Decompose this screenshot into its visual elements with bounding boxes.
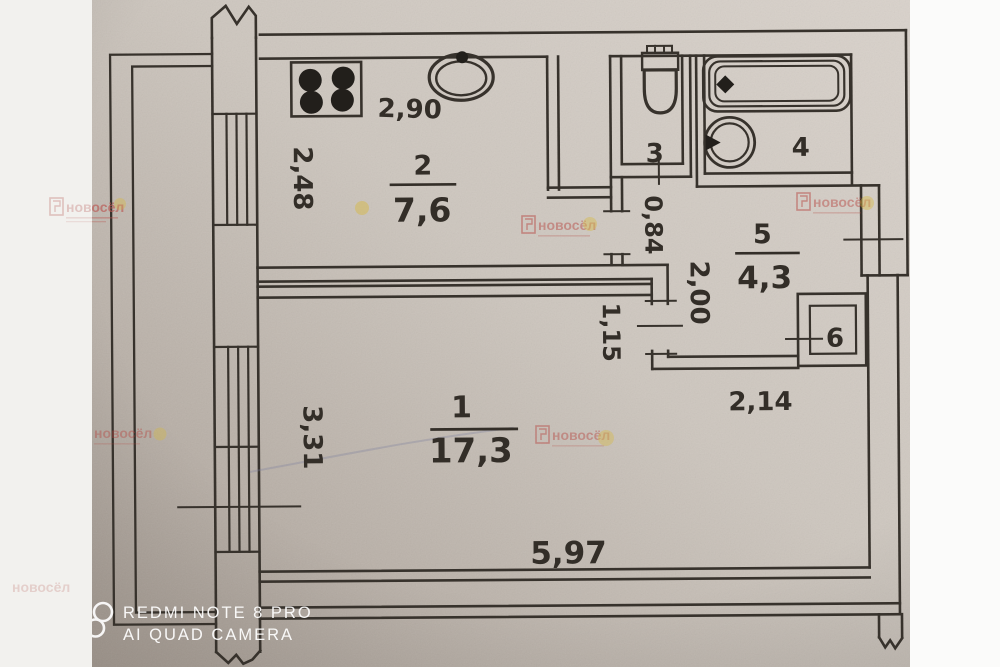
- room-kitchen-number: 2: [413, 150, 432, 181]
- left-white-strip: [0, 0, 92, 667]
- dim-living-depth: 3,31: [297, 405, 327, 469]
- room-hall-number: 5: [753, 219, 772, 250]
- agency-watermark-text: новосёл: [66, 199, 124, 215]
- agency-watermark-text: новосёл: [94, 425, 152, 441]
- room-hall-area: 4,3: [737, 260, 792, 296]
- camera-watermark-line2: AI QUAD CAMERA: [123, 626, 294, 644]
- dim-hall-depth: 2,00: [683, 260, 713, 324]
- agency-watermark-text: новосёл: [12, 579, 70, 595]
- dim-living-right-width: 2,14: [728, 387, 792, 417]
- camera-watermark-line1: REDMI NOTE 8 PRO: [123, 604, 313, 622]
- room-bath-number: 4: [792, 133, 810, 163]
- dim-wall-jog: 1,15: [597, 303, 625, 362]
- splash-mark: [598, 430, 614, 446]
- splash-mark: [154, 428, 167, 441]
- room-wc-number: 3: [646, 139, 664, 169]
- splash-mark: [355, 201, 369, 215]
- dim-kitchen-depth: 2,48: [287, 146, 317, 210]
- room-closet-number: 6: [826, 324, 844, 354]
- dim-passage-width: 0,84: [639, 195, 667, 254]
- dim-kitchen-width: 2,90: [377, 94, 442, 126]
- splash-mark: [860, 196, 874, 210]
- room-living-area: 17,3: [429, 431, 513, 472]
- floorplan-photo-screenshot: 2 7,6 2,90 2,48 3 4 0,84 2,00 5 4,3 6 1,…: [0, 0, 1000, 667]
- splash-mark: [583, 217, 597, 231]
- room-kitchen-area: 7,6: [393, 190, 452, 229]
- dim-living-width: 5,97: [530, 535, 607, 572]
- right-white-strip: [910, 0, 1000, 667]
- room-living-number: 1: [451, 390, 472, 425]
